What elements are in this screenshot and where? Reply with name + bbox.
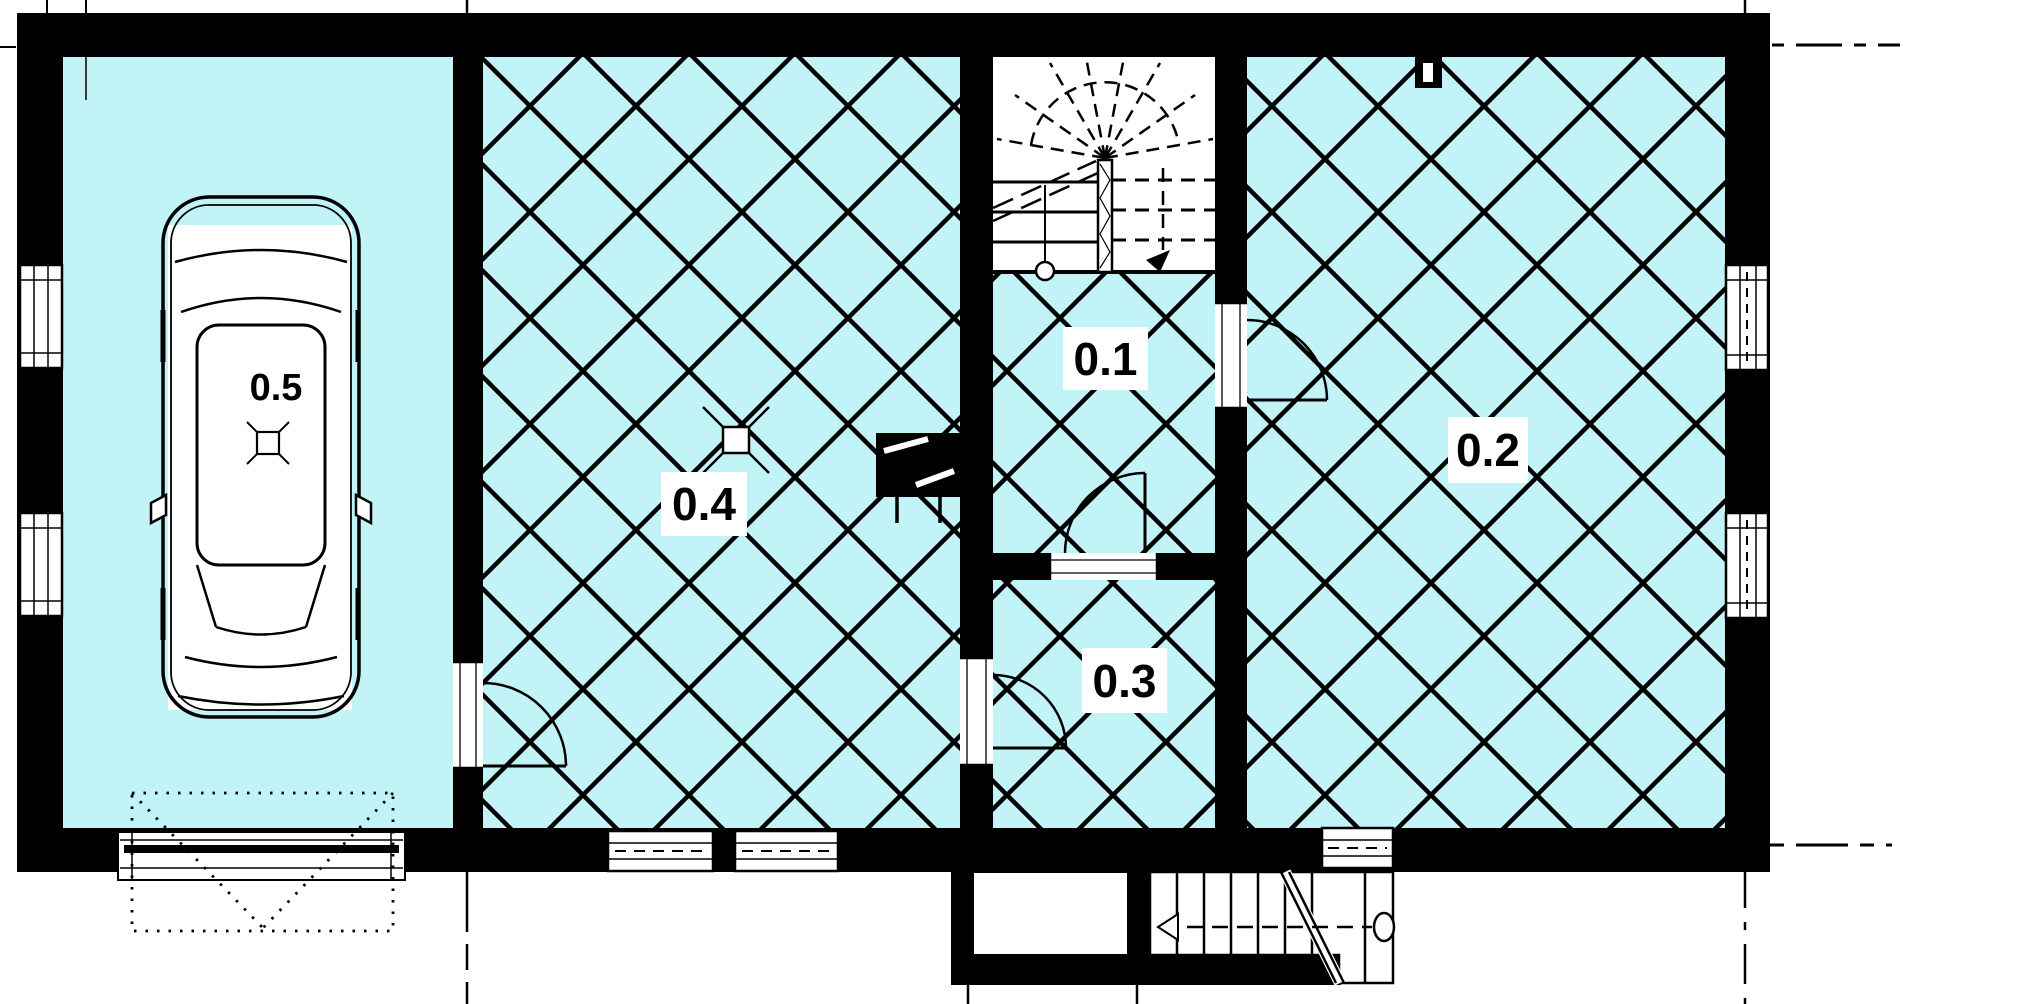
lightwell-wall-bottom bbox=[951, 955, 1341, 985]
car-icon bbox=[151, 197, 371, 717]
wall-hall-room02 bbox=[1215, 57, 1247, 828]
wall-top bbox=[17, 13, 1770, 57]
room-label-0-2: 0.2 bbox=[1448, 417, 1528, 483]
lightwell-wall-right bbox=[1128, 872, 1150, 955]
floor-plan-drawing bbox=[0, 0, 2023, 1004]
window-left-2 bbox=[20, 513, 62, 616]
window-right-2 bbox=[1726, 513, 1768, 618]
window-bottom-3 bbox=[1322, 828, 1393, 868]
room-label-0-4: 0.4 bbox=[661, 472, 747, 536]
window-bottom-1 bbox=[608, 831, 713, 871]
room-01-floor bbox=[993, 272, 1215, 553]
window-left-1 bbox=[20, 265, 62, 368]
wall-right bbox=[1725, 13, 1770, 872]
newel-post-icon bbox=[1036, 262, 1054, 280]
floor-plan: 0.5 0.4 0.1 0.2 0.3 bbox=[0, 0, 2023, 1004]
room-label-0-3: 0.3 bbox=[1082, 648, 1167, 713]
window-bottom-2 bbox=[735, 831, 838, 871]
room-label-0-5: 0.5 bbox=[240, 366, 312, 410]
window-right-1 bbox=[1726, 265, 1768, 370]
wall-left bbox=[17, 13, 63, 872]
room-label-0-1: 0.1 bbox=[1063, 327, 1148, 390]
garage-door bbox=[118, 832, 405, 880]
wall-flue-icon bbox=[1415, 55, 1442, 88]
light-well bbox=[973, 872, 1128, 955]
